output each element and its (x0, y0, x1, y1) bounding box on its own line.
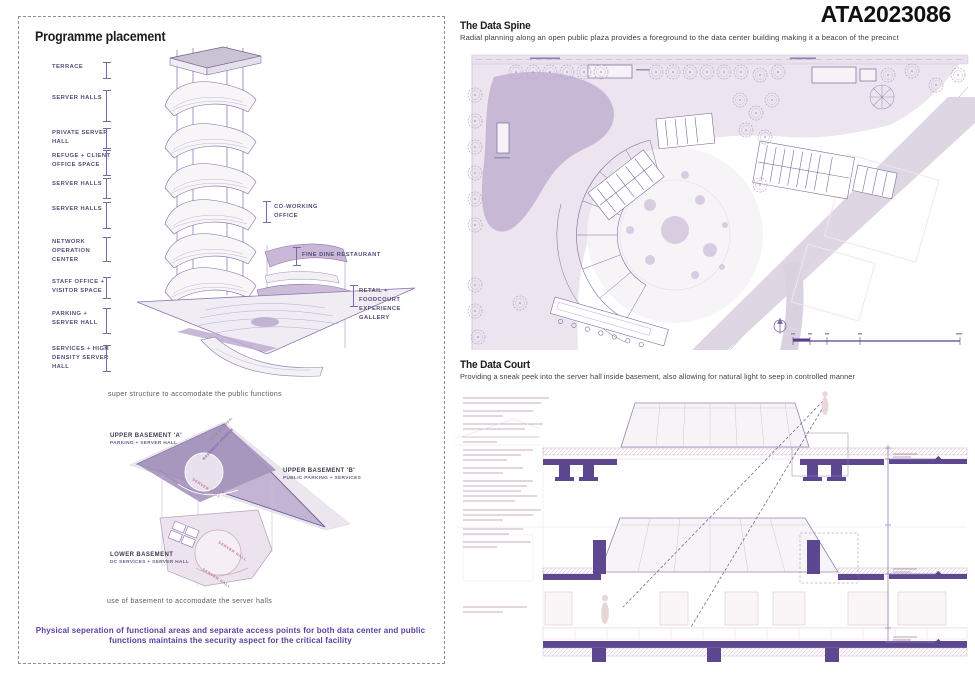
floor-fans (165, 82, 256, 302)
callout-label: CO-WORKING OFFICE (274, 203, 326, 221)
upper-basement-b-title: UPPER BASEMENT 'B' (283, 467, 355, 476)
scale-bar (791, 333, 962, 345)
data-spine-subtitle: Radial planning along an open public pla… (460, 33, 899, 42)
extent-marker (103, 202, 111, 229)
data-spine-title: The Data Spine (460, 20, 531, 32)
extent-marker (263, 201, 271, 223)
extent-marker (103, 178, 111, 199)
lower-basement-sub: DC SERVICES + SERVER HALL (110, 560, 189, 565)
basement-caption: use of basement to accomodate the server… (107, 598, 272, 605)
board-id: ATA2023086 (821, 1, 951, 28)
person-figure (822, 391, 829, 415)
data-court-subtitle: Providing a sneak peek into the server h… (460, 372, 855, 381)
callout-label: FINE DINE RESTAURANT (302, 251, 392, 260)
extent-marker (293, 247, 301, 266)
extent-marker (103, 62, 111, 79)
extent-marker (103, 90, 111, 122)
basement-floor-slab (543, 628, 967, 662)
extent-marker (103, 345, 111, 372)
court-skylight-lower (600, 518, 838, 572)
callout-label: RETAIL + FOODCOURT EXPERIENCE GALLERY (359, 287, 427, 323)
site-plan (460, 45, 975, 350)
person-figure (601, 595, 609, 624)
extent-marker (103, 237, 111, 262)
extent-marker (103, 308, 111, 334)
lower-basement-title: LOWER BASEMENT (110, 551, 173, 560)
upper-basement-a-sub: PARKING + SERVER HALL (110, 441, 177, 446)
extent-marker (103, 277, 111, 299)
annotation-notes (463, 398, 549, 612)
extent-marker (103, 150, 111, 176)
section-drawing: DATA COURT (455, 385, 975, 668)
courtyard-tree-icon (870, 85, 894, 109)
tower-caption: super structure to accomodate the public… (108, 391, 282, 398)
court-skylight-upper (621, 403, 809, 447)
extent-marker (103, 128, 111, 149)
basement-axonometric: SERVER HALL SERVER HALL SERVER HALL SITE… (100, 418, 360, 616)
data-court-title: The Data Court (460, 359, 530, 371)
extent-marker (350, 285, 358, 307)
upper-basement-b-sub: PUBLIC PARKING + SERVICES (283, 476, 361, 481)
summary-statement: Physical seperation of functional areas … (28, 626, 433, 647)
upper-basement-a-title: UPPER BASEMENT 'A' (110, 432, 182, 441)
presentation-board: ATA2023086 Programme placement TERRACE S… (0, 0, 975, 690)
